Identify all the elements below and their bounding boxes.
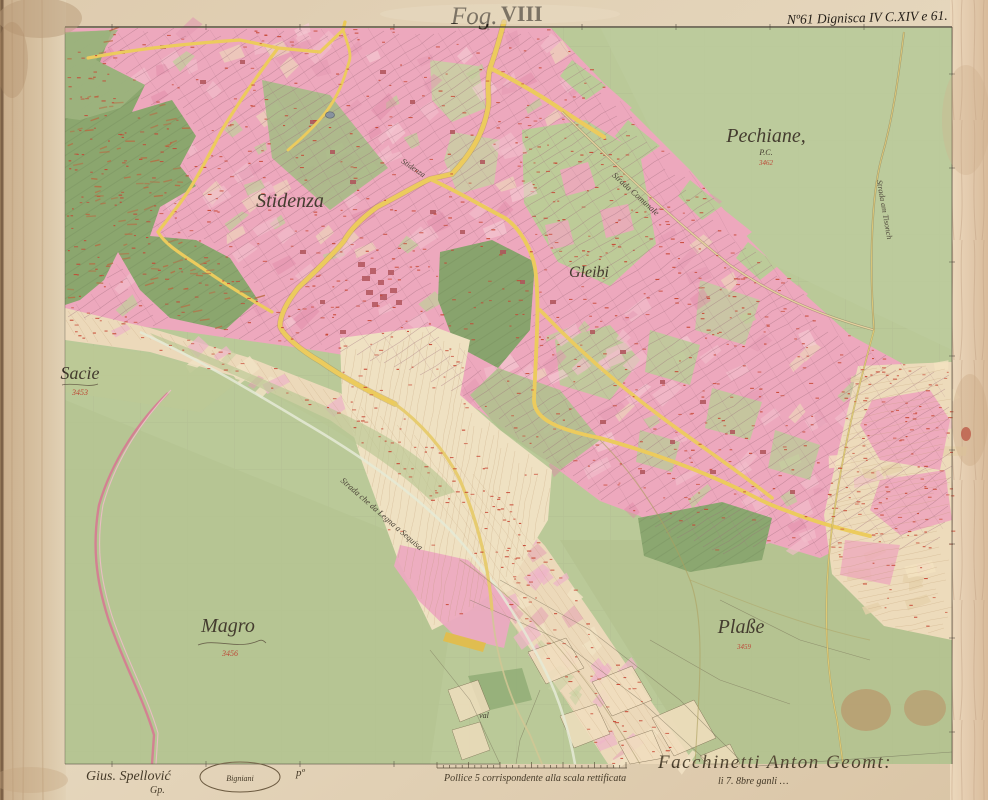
svg-text:Gp.: Gp. — [150, 785, 165, 796]
svg-text:Pollice 5 corrispondente alla: Pollice 5 corrispondente alla scala rett… — [443, 773, 626, 784]
svg-text:li 7. 8bre ganli …: li 7. 8bre ganli … — [718, 776, 789, 787]
svg-text:Bigniani: Bigniani — [226, 774, 254, 783]
svg-text:pº: pº — [295, 767, 306, 779]
svg-text:Gius. Spellović: Gius. Spellović — [86, 769, 172, 784]
